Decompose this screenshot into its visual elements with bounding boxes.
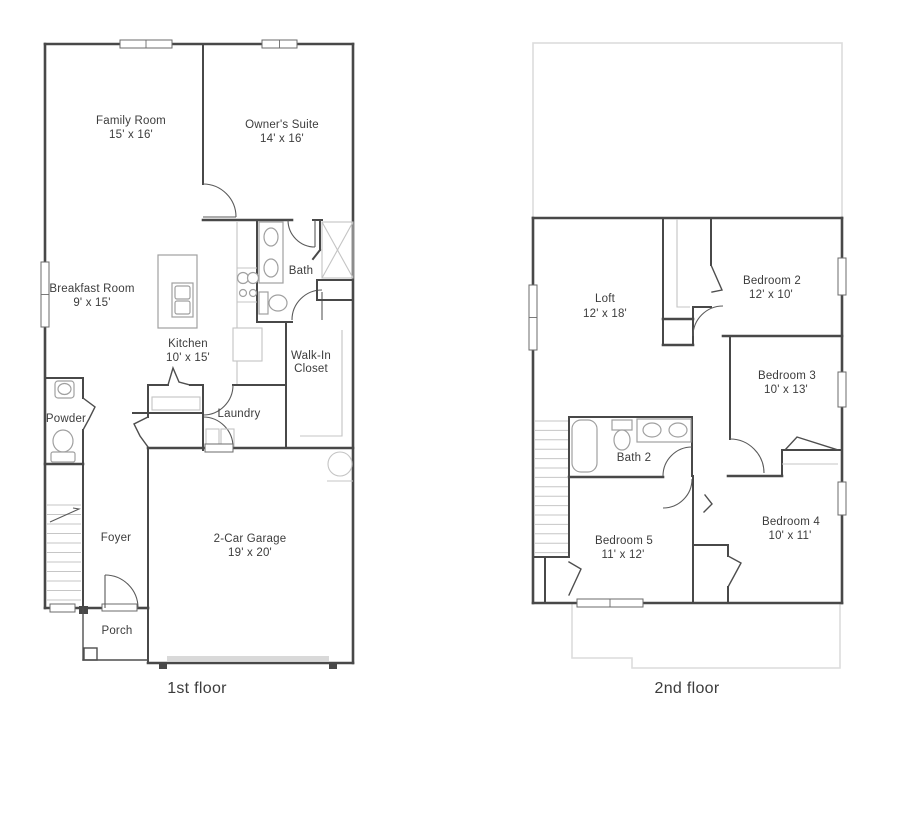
second-floor-labels: Loft 12' x 18' Bedroom 2 12' x 10' Bedro… <box>583 275 820 697</box>
window-foyer <box>50 604 75 612</box>
bath2-fixtures <box>572 419 691 472</box>
label-walkin-1: Walk-In <box>291 350 331 362</box>
bedroom3-walls <box>728 336 842 476</box>
door-ajar-mark <box>711 265 722 292</box>
label-loft-dims: 12' x 18' <box>583 308 627 320</box>
window-bedroom3 <box>838 372 846 407</box>
shower <box>313 220 353 278</box>
caption-second-floor: 2nd floor <box>655 680 720 697</box>
window-bedroom2 <box>838 258 846 295</box>
label-bath: Bath <box>289 265 313 277</box>
label-bath2: Bath 2 <box>617 452 651 464</box>
hall-door-mark <box>168 368 190 385</box>
window-owners-suite <box>262 40 297 48</box>
label-family-room-dims: 15' x 16' <box>109 129 153 141</box>
bedroom3-closet-door-mark <box>785 437 838 450</box>
label-bedroom3: Bedroom 3 <box>758 370 816 382</box>
toilet-tank <box>612 420 632 430</box>
label-breakfast-room: Breakfast Room <box>49 283 134 295</box>
window-breakfast-room <box>41 262 49 327</box>
garage-door-panel <box>167 656 329 661</box>
second-floor-plan: Loft 12' x 18' Bedroom 2 12' x 10' Bedro… <box>529 43 846 697</box>
label-bedroom4: Bedroom 4 <box>762 516 820 528</box>
label-bedroom2: Bedroom 2 <box>743 275 801 287</box>
window-bedroom5 <box>577 599 643 607</box>
stove-burners <box>238 273 259 297</box>
front-door <box>102 575 138 611</box>
label-bedroom3-dims: 10' x 13' <box>764 384 808 396</box>
bath-vanity <box>259 222 283 283</box>
label-porch: Porch <box>101 625 132 637</box>
label-kitchen-dims: 10' x 15' <box>166 352 210 364</box>
hall-door-mark <box>704 495 712 512</box>
bathtub <box>572 420 597 472</box>
bath-door-arc <box>288 220 315 247</box>
hall-and-bedroom-doors <box>663 476 741 603</box>
label-loft: Loft <box>595 293 616 305</box>
bath2-door-arc <box>663 447 692 476</box>
roof-outline-upper <box>533 43 842 218</box>
label-bedroom5: Bedroom 5 <box>595 535 653 547</box>
garage-entry-threshold <box>205 444 233 452</box>
refrigerator <box>233 328 262 361</box>
bedroom4-door-mark <box>728 556 741 587</box>
foyer-closet-door-mark <box>134 417 148 447</box>
mudroom-bench <box>152 397 200 410</box>
label-bedroom5-dims: 11' x 12' <box>601 549 644 561</box>
bedroom2-door-arc <box>693 306 723 336</box>
label-foyer: Foyer <box>101 532 131 544</box>
label-owners-suite-dims: 14' x 16' <box>260 133 304 145</box>
label-bedroom2-dims: 12' x 10' <box>749 289 793 301</box>
powder-toilet <box>53 430 73 452</box>
toilet-bowl <box>614 430 630 450</box>
window-loft <box>529 285 537 350</box>
stairwell-second-floor <box>663 218 722 345</box>
window-bedroom4 <box>838 482 846 515</box>
closet-rod <box>300 330 342 436</box>
label-kitchen: Kitchen <box>168 338 208 350</box>
label-breakfast-room-dims: 9' x 15' <box>73 297 110 309</box>
label-family-room: Family Room <box>96 115 166 127</box>
garage-water-heater <box>327 452 353 481</box>
window-family-room <box>120 40 172 48</box>
label-garage: 2-Car Garage <box>214 533 287 545</box>
owners-suite-door-arc <box>203 184 236 217</box>
bedroom5-closet-door-mark <box>569 562 581 595</box>
wall-family-owner-divider <box>203 44 236 217</box>
stair-rail <box>677 219 690 307</box>
first-floor-stairs <box>46 462 88 614</box>
label-garage-dims: 19' x 20' <box>228 547 272 559</box>
label-powder: Powder <box>46 413 86 425</box>
first-floor-plan: Family Room 15' x 16' Owner's Suite 14' … <box>41 40 353 697</box>
bath-toilet <box>259 292 287 314</box>
bedroom2-walls <box>693 306 842 336</box>
label-laundry: Laundry <box>218 408 261 420</box>
label-owners-suite: Owner's Suite <box>245 119 319 131</box>
laundry-door-arc-2 <box>203 417 233 447</box>
first-floor-labels: Family Room 15' x 16' Owner's Suite 14' … <box>46 115 331 697</box>
roof-outline-lower <box>572 604 840 668</box>
label-bedroom4-dims: 10' x 11' <box>768 530 811 542</box>
bedroom3-door-arc <box>730 439 764 473</box>
label-walkin-2: Closet <box>294 363 328 375</box>
bedroom5-door-arc <box>663 479 692 508</box>
caption-first-floor: 1st floor <box>167 680 227 697</box>
